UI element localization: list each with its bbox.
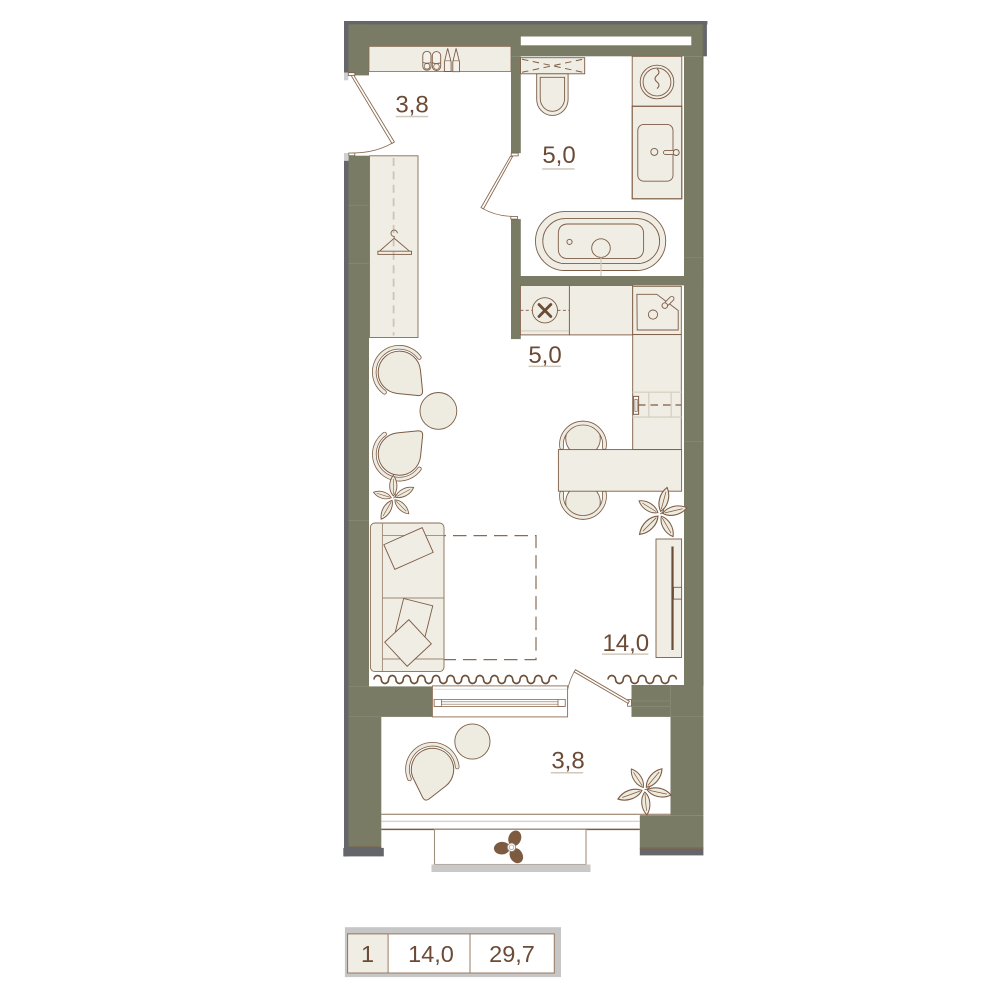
svg-text:14,0: 14,0 [602, 630, 649, 657]
svg-text:3,8: 3,8 [395, 91, 428, 118]
svg-text:5,0: 5,0 [528, 342, 561, 369]
svg-text:5,0: 5,0 [542, 142, 575, 169]
svg-text:1: 1 [361, 941, 374, 967]
svg-text:3,8: 3,8 [551, 748, 584, 775]
svg-text:14,0: 14,0 [408, 941, 454, 967]
svg-text:29,7: 29,7 [489, 941, 535, 967]
